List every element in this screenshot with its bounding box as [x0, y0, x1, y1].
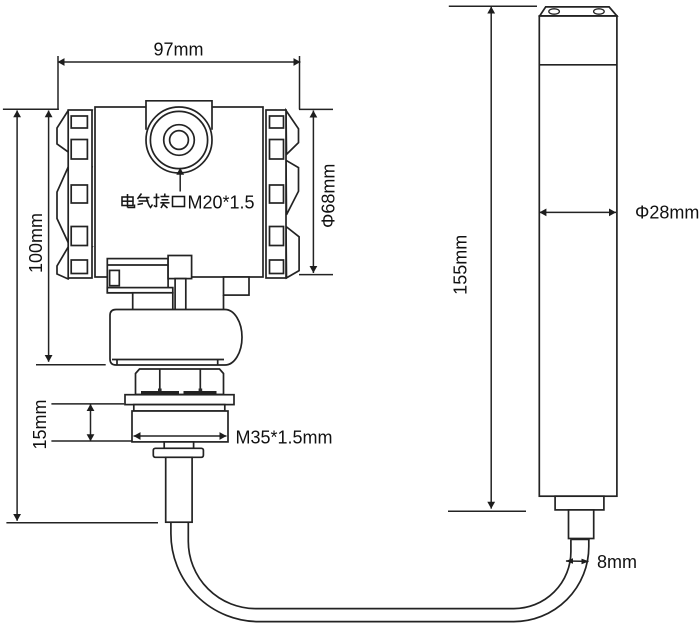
svg-text:M35*1.5mm: M35*1.5mm: [236, 428, 333, 448]
svg-text:8mm: 8mm: [597, 552, 637, 572]
svg-text:100mm: 100mm: [26, 213, 46, 273]
svg-text:15mm: 15mm: [30, 399, 50, 449]
svg-text:155mm: 155mm: [451, 235, 471, 295]
svg-text:97mm: 97mm: [154, 40, 204, 60]
svg-text:Φ68mm: Φ68mm: [319, 164, 339, 228]
svg-text:Φ28mm: Φ28mm: [635, 203, 699, 223]
svg-text:M20*1.5: M20*1.5: [188, 192, 255, 212]
